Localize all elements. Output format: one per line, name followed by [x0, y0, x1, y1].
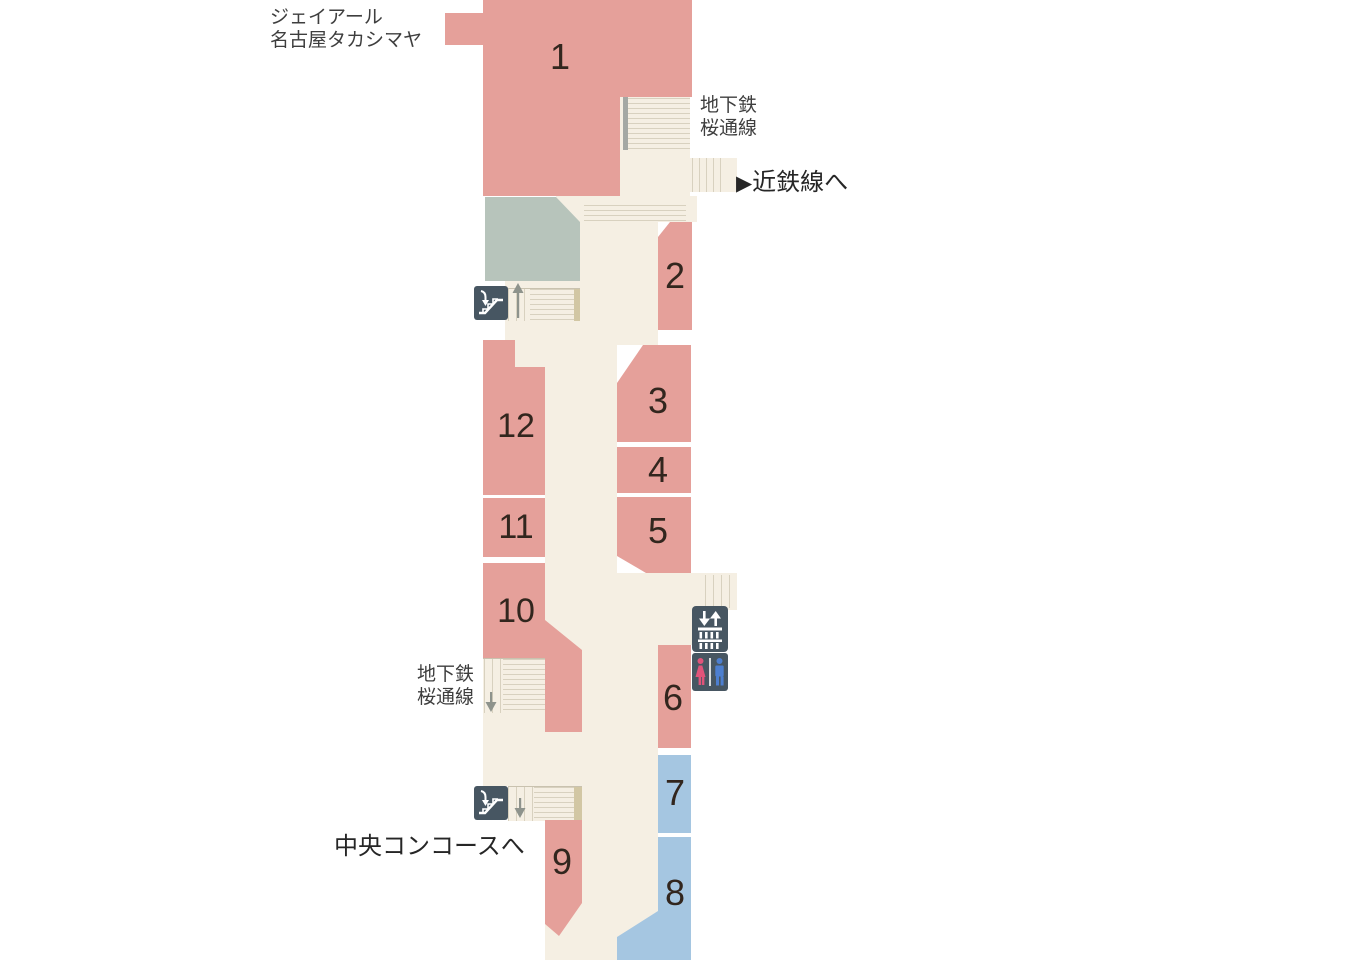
subway-top-line2: 桜通線: [700, 117, 757, 140]
block-3-number: 3: [636, 379, 680, 423]
down-arrow-icon: [484, 692, 498, 714]
stairs-treads: [503, 659, 545, 713]
stairs-edge: [574, 787, 582, 821]
to-central-concourse-label: 中央コンコースへ: [334, 826, 525, 861]
stairs-edge: [574, 289, 580, 321]
band-stripes: [584, 205, 686, 222]
ticket-gate-icon: [692, 606, 728, 652]
block-5-number: 5: [636, 509, 680, 553]
block-8-number: 8: [653, 871, 697, 915]
subway-left-line2: 桜通線: [417, 686, 474, 709]
block-12-number: 12: [494, 404, 538, 448]
block-12-corner-notch: [515, 337, 547, 367]
block-9-number: 9: [540, 840, 584, 884]
block-11-number: 11: [494, 505, 538, 549]
escalator-icon: [474, 786, 508, 820]
block-7-number: 7: [653, 771, 697, 815]
walkway-elevator-landing: [658, 573, 737, 610]
walkway-kintetsu-passage: [690, 158, 737, 192]
passage-stripes: [705, 575, 735, 608]
right-arrow-glyph: ▶: [736, 171, 752, 195]
subway-top-line1: 地下鉄: [700, 94, 757, 117]
jr-takashimaya-line2: 名古屋タカシマヤ: [270, 29, 422, 52]
walkway-upper-band: [556, 196, 697, 222]
stairs-subway-top: [628, 98, 690, 150]
block-10-number: 10: [494, 589, 538, 633]
jr-takashimaya-line1: ジェイアール: [270, 6, 422, 29]
to-kintetsu-label: ▶近鉄線へ: [736, 162, 848, 197]
escalator-icon: [474, 286, 508, 320]
restroom-icon: [692, 653, 728, 691]
block-1-number: 1: [538, 35, 582, 79]
subway-left-line1: 地下鉄: [417, 663, 474, 686]
block-4-number: 4: [636, 448, 680, 492]
walkway-lower-corridor: [582, 573, 658, 960]
block-6-number: 6: [651, 676, 695, 720]
up-arrow-icon: [511, 281, 525, 319]
to-kintetsu-text: 近鉄線へ: [752, 168, 848, 196]
stairs-treads: [534, 787, 574, 821]
down-arrow-icon: [513, 798, 527, 820]
jr-takashimaya-label: ジェイアール 名古屋タカシマヤ: [270, 6, 422, 52]
area-green-block: [485, 197, 580, 281]
subway-sakuradori-label-top: 地下鉄 桜通線: [700, 94, 757, 140]
stairs-treads: [530, 289, 574, 321]
passage-stripes: [692, 158, 724, 192]
subway-sakuradori-label-left: 地下鉄 桜通線: [417, 663, 474, 709]
station-floor-map: 1 2 3 4 5 6 7 8 9 10 11 12 ジェイアール 名古屋タカシ…: [0, 0, 1365, 960]
block-2-number: 2: [653, 254, 697, 298]
